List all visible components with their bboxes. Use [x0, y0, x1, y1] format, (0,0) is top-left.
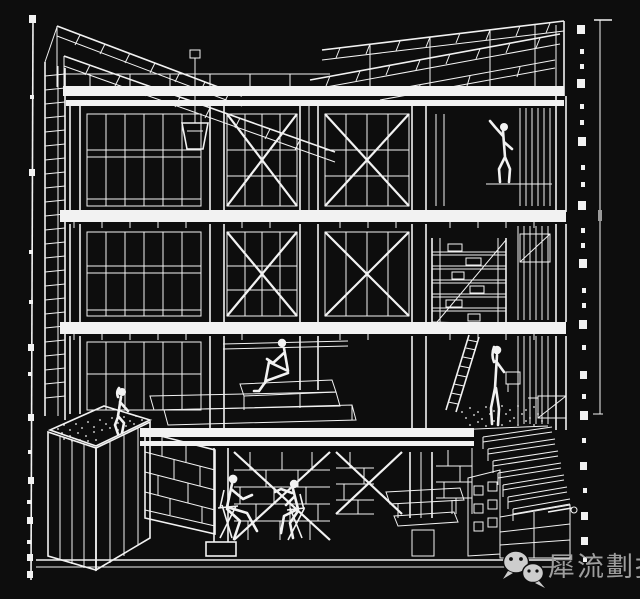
- architectural-drawing-canvas: 犀流劃报: [0, 0, 640, 599]
- eave-beam: [63, 86, 564, 106]
- watermark-text: 犀流劃报: [548, 552, 640, 583]
